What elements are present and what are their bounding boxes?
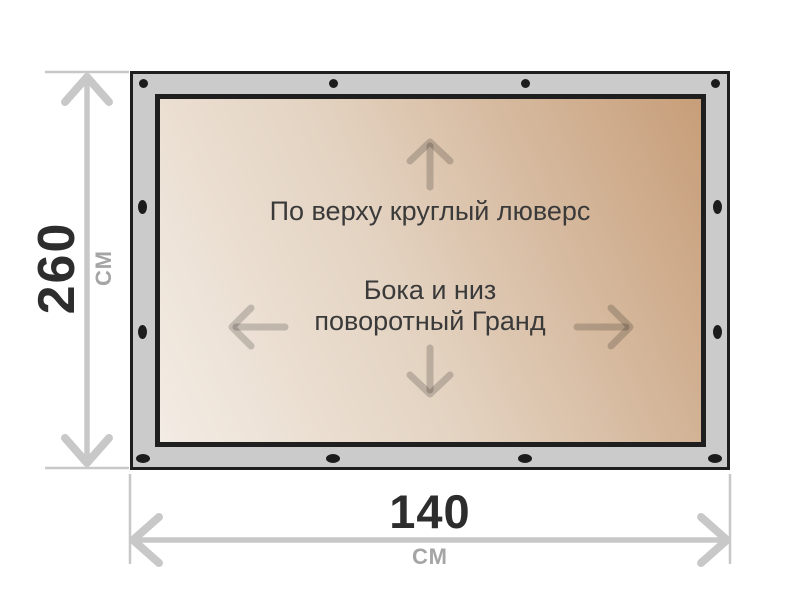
grommet — [711, 79, 720, 88]
banner-surface — [155, 94, 706, 447]
width-arrowhead-left-icon — [133, 517, 159, 563]
top-edge-spec-label: По верху круглый люверс — [130, 196, 730, 227]
sides-bottom-spec-line1: Бока и низ — [130, 275, 730, 306]
banner-size-diagram: По верху круглый люверс Бока и низ повор… — [0, 0, 800, 600]
width-arrowhead-right-icon — [701, 517, 727, 563]
grommet — [708, 454, 722, 463]
grommet — [136, 454, 150, 463]
sides-bottom-spec-line2: поворотный Гранд — [130, 306, 730, 337]
sides-bottom-spec-label: Бока и низ поворотный Гранд — [130, 275, 730, 337]
grommet — [329, 79, 338, 88]
height-arrowhead-down-icon — [65, 438, 109, 463]
grommet — [326, 454, 340, 463]
height-arrowhead-up-icon — [65, 77, 109, 102]
grommet — [521, 79, 530, 88]
width-dimension-unit: СМ — [230, 544, 630, 570]
width-dimension-value: 140 — [230, 484, 630, 539]
height-dimension-value: 260 — [27, 222, 87, 315]
grommet — [139, 79, 148, 88]
height-dimension-unit: СМ — [91, 250, 117, 286]
grommet — [518, 454, 532, 463]
